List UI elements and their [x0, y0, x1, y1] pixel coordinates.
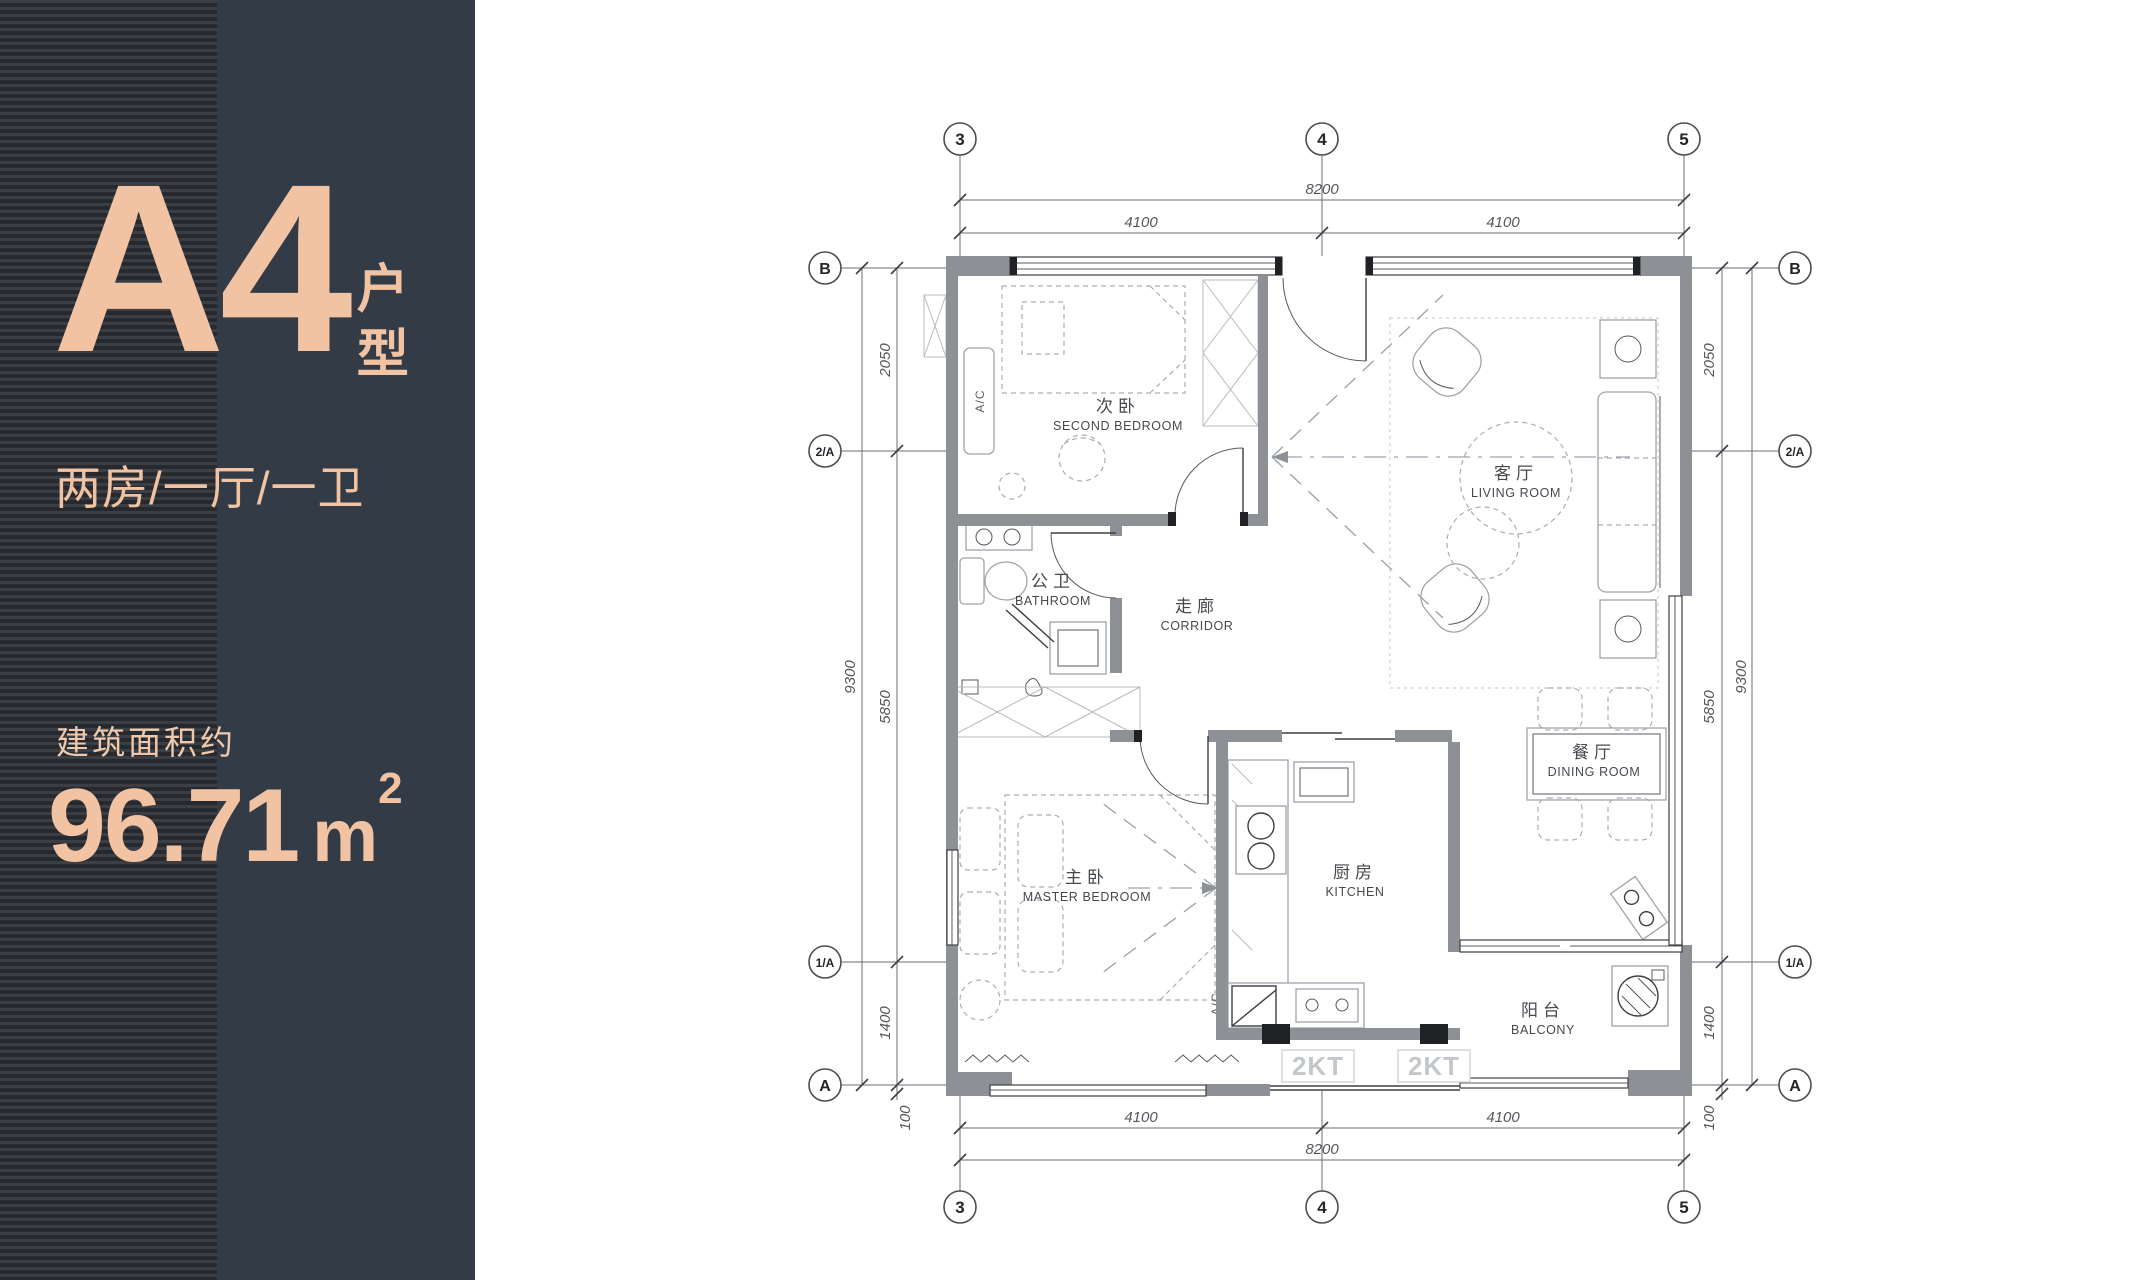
- grid-row-1a-right: 1/A: [1786, 956, 1805, 970]
- room-bathroom-zh: 公卫: [1031, 572, 1075, 591]
- floor-plan-svg: A/C: [0, 0, 2146, 1280]
- dim-bottom-total: 8200: [1305, 1141, 1339, 1158]
- ac-label-bedroom: A/C: [973, 389, 987, 412]
- room-corridor-zh: 走廊: [1175, 597, 1219, 616]
- dim-top-left: 4100: [1124, 214, 1158, 231]
- grid-col-3-top: 3: [955, 130, 964, 149]
- room-corridor-en: CORRIDOR: [1161, 619, 1234, 633]
- kt-units: 2KT 2KT: [1282, 1050, 1470, 1082]
- dim-top-right: 4100: [1486, 214, 1520, 231]
- grid-row-a-right: A: [1789, 1078, 1801, 1095]
- room-living-zh: 客厅: [1494, 464, 1538, 483]
- room-dining-zh: 餐厅: [1572, 743, 1616, 762]
- room-dining-en: DINING ROOM: [1548, 765, 1641, 779]
- room-master-zh: 主卧: [1065, 868, 1109, 887]
- dim-bottom-right: 4100: [1486, 1109, 1520, 1126]
- grid-col-3-bottom: 3: [955, 1198, 964, 1217]
- room-kitchen-zh: 厨房: [1333, 863, 1377, 882]
- room-second-bedroom-en: SECOND BEDROOM: [1053, 419, 1183, 433]
- grid-row-2a-right: 2/A: [1786, 445, 1805, 459]
- grid-row-a-left: A: [819, 1078, 831, 1095]
- dim-left-total: 9300: [842, 660, 859, 694]
- dining-furniture: [1527, 688, 1667, 950]
- dim-right-total: 9300: [1733, 660, 1750, 694]
- grid-col-4-bottom: 4: [1317, 1198, 1327, 1217]
- sofa-icon: [1598, 392, 1656, 592]
- washing-machine-icon: [1612, 966, 1668, 1026]
- grid-col-5-top: 5: [1679, 130, 1688, 149]
- dim-left-upper: 2050: [877, 343, 894, 378]
- dim-bottom-left: 4100: [1124, 1109, 1158, 1126]
- dim-right-upper: 2050: [1701, 343, 1718, 378]
- dim-left-offset: 100: [897, 1105, 914, 1131]
- grid-row-2a-left: 2/A: [816, 445, 835, 459]
- dim-right-lower: 1400: [1701, 1006, 1718, 1040]
- windows: [947, 257, 1682, 1096]
- cart-icon: [1611, 876, 1668, 939]
- room-bathroom-en: BATHROOM: [1015, 594, 1091, 608]
- dim-right-mid: 5850: [1701, 690, 1718, 724]
- stove-icon: [1236, 806, 1286, 874]
- room-balcony-zh: 阳台: [1521, 1001, 1565, 1020]
- grid-col-4-top: 4: [1317, 130, 1327, 149]
- sink-icon: [1296, 989, 1358, 1022]
- room-balcony-en: BALCONY: [1511, 1023, 1575, 1037]
- kt-label-right: 2KT: [1408, 1051, 1460, 1081]
- master-bedroom-furniture: [960, 795, 1239, 1062]
- bathroom-fixtures: [960, 524, 1106, 696]
- grid-col-5-bottom: 5: [1679, 1198, 1688, 1217]
- dim-left-lower: 1400: [877, 1006, 894, 1040]
- grid-row-1a-left: 1/A: [816, 956, 835, 970]
- room-kitchen-en: KITCHEN: [1325, 885, 1384, 899]
- grid-row-b-left: B: [819, 261, 831, 278]
- dim-right-offset: 100: [1701, 1105, 1718, 1131]
- second-bedroom-furniture: A/C: [924, 280, 1258, 499]
- dim-top-total: 8200: [1305, 181, 1339, 198]
- balcony-fittings: [1612, 966, 1668, 1026]
- walls: [946, 256, 1692, 1096]
- armchair-icon: [1405, 320, 1490, 405]
- grid-row-b-right: B: [1789, 261, 1801, 278]
- toilet-icon: [960, 558, 984, 604]
- kt-label-left: 2KT: [1292, 1051, 1344, 1081]
- living-room-furniture: [1390, 318, 1660, 688]
- room-living-en: LIVING ROOM: [1471, 486, 1561, 500]
- armchair-icon: [1413, 556, 1498, 641]
- room-master-en: MASTER BEDROOM: [1023, 890, 1152, 904]
- dining-table-icon: [1527, 728, 1666, 800]
- dim-left-mid: 5850: [877, 690, 894, 724]
- page: A4 户型 两房/一厅/一卫 建筑面积约 96.71m2 A/C: [0, 0, 2146, 1280]
- doors: [1051, 278, 1366, 804]
- room-second-bedroom-zh: 次卧: [1096, 397, 1140, 416]
